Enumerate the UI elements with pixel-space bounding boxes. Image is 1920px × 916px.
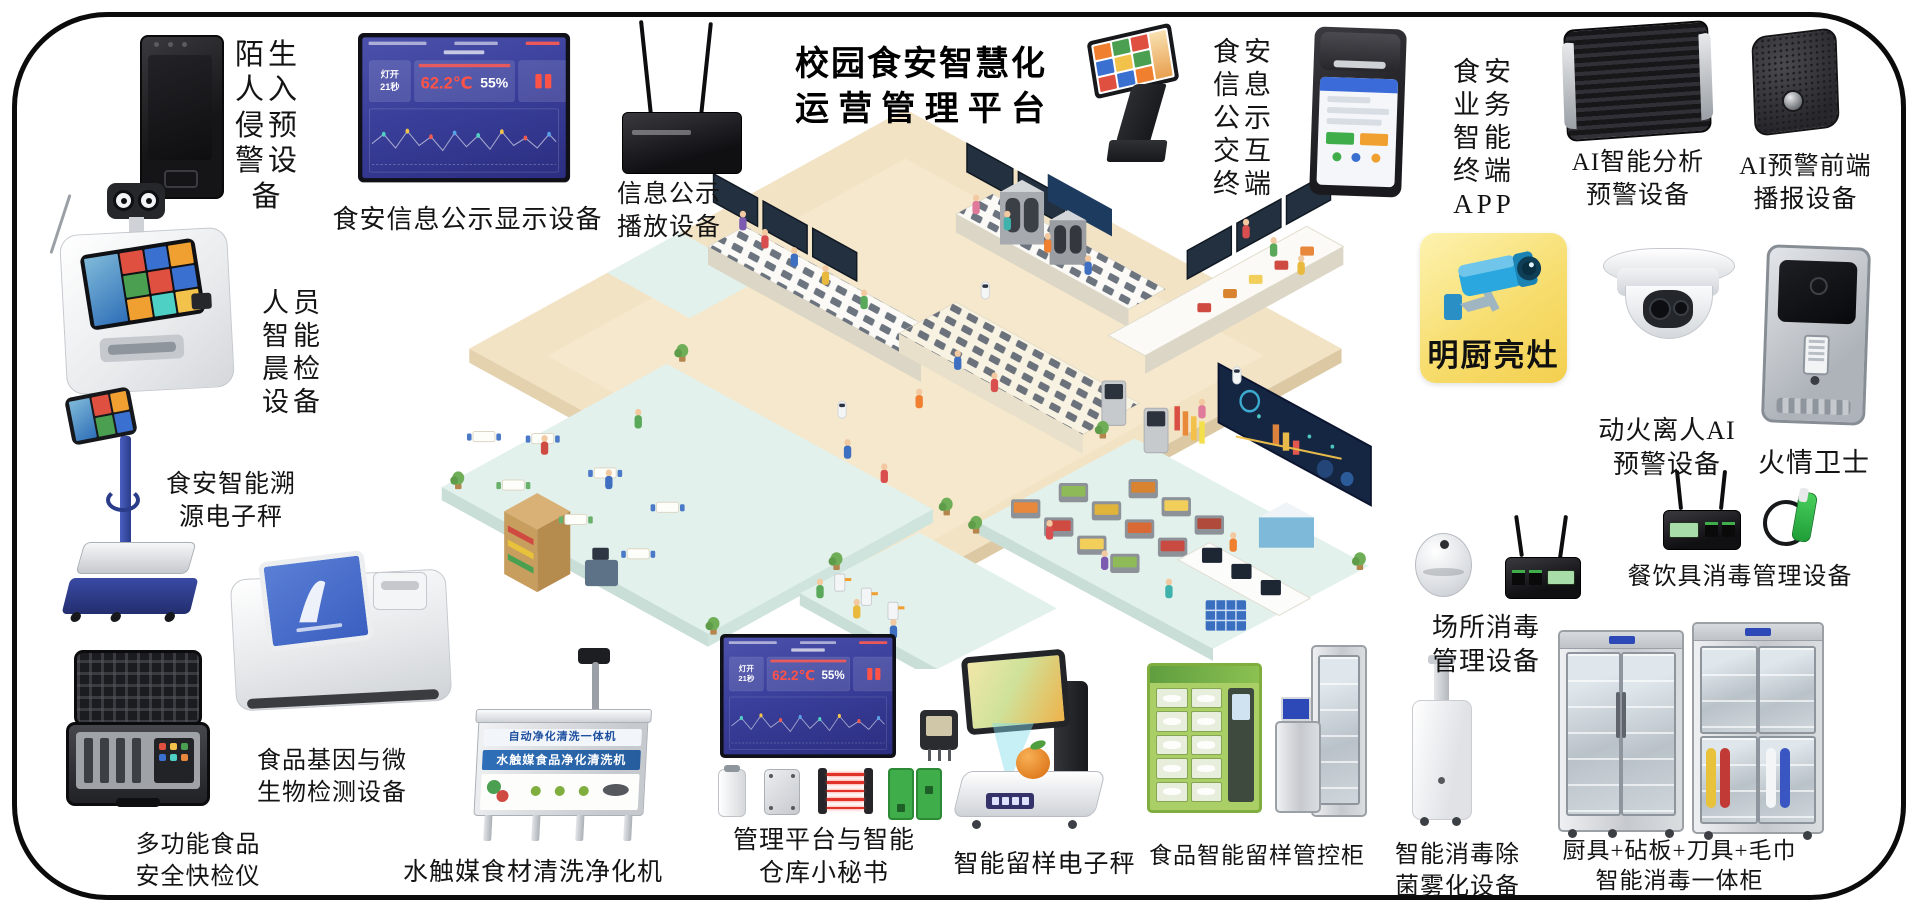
label-food-info-display: 食安信息公示显示设备 — [330, 203, 605, 237]
sensor-canister-icon — [718, 769, 746, 817]
dashboard-status-card: 灯开 21秒 — [729, 657, 763, 691]
label-info-player: 信息公示 播放设备 — [610, 178, 728, 244]
fog-sterilizer-device — [1412, 655, 1472, 820]
dashboard-alert-card — [519, 60, 566, 101]
laptop-icon — [1281, 697, 1311, 721]
page-title: 校园食安智慧化 运营管理平台 — [795, 42, 1045, 132]
dashboard-climate-card: 62.2℃ 55% — [414, 60, 514, 101]
label-disinfection-cabinet: 厨具+砧板+刀具+毛巾 智能消毒一体柜 — [1512, 836, 1847, 897]
light-curtain-icon — [818, 768, 827, 814]
cctv-camera-icon — [1438, 246, 1550, 330]
label-stranger-alarm: 陌生 人入 侵预 警设 备 — [233, 38, 303, 215]
label-gene-detector: 食品基因与微 生物检测设备 — [256, 746, 408, 809]
label-tableware-disinfection: 餐饮具消毒管理设备 — [1626, 562, 1854, 594]
label-site-disinfection: 场所消毒 管理设备 — [1430, 611, 1542, 680]
atomizer-body-icon — [1412, 700, 1472, 820]
site-disinfection-gateway — [1505, 515, 1579, 603]
dashboard-trend-chart — [729, 697, 887, 750]
dashboard-screen: 灯开 21秒 62.2℃ 55% — [358, 33, 570, 182]
morning-check-device — [55, 183, 240, 395]
warehouse-sensor-kit — [712, 765, 952, 820]
label-app-terminal: 食安 业务 智能 终端 APP — [1452, 56, 1516, 221]
case-tray-icon — [66, 722, 210, 806]
label-ai-broadcast: AI预警前端 播报设备 — [1728, 150, 1883, 216]
gateway-box-icon — [764, 769, 800, 815]
rapid-tester-device — [66, 650, 206, 812]
case-lid-icon — [74, 650, 202, 726]
sample-cabinet-steel — [1275, 645, 1367, 817]
ai-broadcast-device — [1753, 32, 1838, 132]
ai-analysis-device — [1565, 25, 1710, 137]
label-sample-cabinet: 食品智能留样管控柜 — [1146, 841, 1368, 871]
label-mgmt-platform: 管理平台与智能 仓库小秘书 — [728, 824, 920, 890]
label-fire-guardian: 火情卫士 — [1756, 446, 1872, 482]
dashboard-climate-card: 62.2℃ 55% — [767, 657, 850, 691]
antenna-icon — [699, 22, 713, 116]
temperature-value: 62.2℃ — [772, 668, 815, 684]
fire-ai-camera-device — [1597, 248, 1740, 363]
food-washer-device: 自动净化清洗一体机 水触媒食品净化清洗机 — [470, 648, 650, 838]
gene-detector-device — [233, 556, 449, 716]
dashboard-trend-chart — [369, 109, 559, 173]
bright-kitchen-label: 明厨亮灶 — [1428, 330, 1560, 375]
disinfection-cabinet-glass — [1558, 630, 1684, 832]
dashboard-screen: 灯开 21秒 62.2℃ 55% — [720, 634, 896, 758]
fire-guardian-box-icon — [1761, 244, 1871, 426]
handheld-pos-icon — [1309, 26, 1407, 197]
ozone-ball-icon — [1415, 533, 1472, 597]
label-morning-check: 人员 智能 晨检 设备 — [262, 287, 324, 419]
robot-eyes-icon — [107, 183, 165, 219]
sample-scale-device — [958, 653, 1106, 831]
pcb-board-icon — [888, 768, 914, 820]
stranger-intrusion-device — [140, 35, 220, 200]
site-disinfection-ball — [1415, 533, 1472, 597]
morning-check-body-icon — [59, 227, 235, 396]
temperature-humidity-sensor — [920, 710, 958, 750]
label-fire-ai-camera: 动火离人AI 预警设备 — [1592, 414, 1742, 483]
label-sample-scale: 智能留样电子秤 — [952, 848, 1137, 881]
humidity-value: 55% — [821, 669, 844, 682]
speaker-icon — [1751, 27, 1839, 137]
washer-banner-main: 水触媒食品净化清洗机 — [482, 750, 641, 770]
green-locker-icon — [1147, 663, 1262, 813]
page-title-line2: 运营管理平台 — [795, 87, 1045, 132]
label-rapid-tester: 多功能食品 安全快检仪 — [134, 830, 262, 893]
label-info-kiosk: 食安 信息 公示 交互 终端 — [1213, 36, 1275, 201]
analyzer-screen-icon — [258, 550, 374, 652]
tableware-sensor-tag — [1763, 488, 1825, 550]
humidity-value: 55% — [480, 75, 508, 91]
infographic-canvas: 校园食安智慧化 运营管理平台 陌生 人入 侵预 警设 备 灯开 21秒 62.2… — [0, 0, 1920, 916]
sample-cabinet-locker — [1147, 663, 1262, 813]
temperature-value: 62.2℃ — [421, 73, 473, 92]
label-ai-analysis: AI智能分析 预警设备 — [1562, 146, 1714, 212]
ai-server-box-icon — [1563, 20, 1712, 142]
app-terminal-device — [1312, 28, 1412, 200]
cutting-board-icon — [1706, 748, 1716, 808]
washer-banner-top: 自动净化清洗一体机 — [483, 729, 642, 746]
antenna-icon — [639, 20, 653, 116]
bright-kitchen-card: 明厨亮灶 — [1420, 233, 1567, 383]
label-trace-scale: 食安智能溯 源电子秤 — [165, 468, 297, 534]
dashboard-status-card: 灯开 21秒 — [369, 60, 410, 101]
fire-guardian-device — [1764, 246, 1868, 424]
washer-body-icon: 自动净化清洗一体机 水触媒食品净化清洗机 — [473, 718, 648, 816]
printer-icon — [373, 572, 427, 610]
orange-fruit-icon — [1016, 747, 1050, 779]
info-player-device — [622, 20, 740, 175]
food-info-display-device: 灯开 21秒 62.2℃ 55% — [358, 33, 570, 183]
page-title-line1: 校园食安智慧化 — [795, 42, 1045, 87]
label-food-washer: 水触媒食材清洗净化机 — [392, 856, 674, 889]
disinfection-cabinet-tools — [1692, 622, 1824, 834]
dashboard-alert-card — [853, 657, 892, 691]
info-interactive-kiosk — [1090, 26, 1194, 166]
mgmt-platform-screen: 灯开 21秒 62.2℃ 55% — [720, 634, 896, 758]
